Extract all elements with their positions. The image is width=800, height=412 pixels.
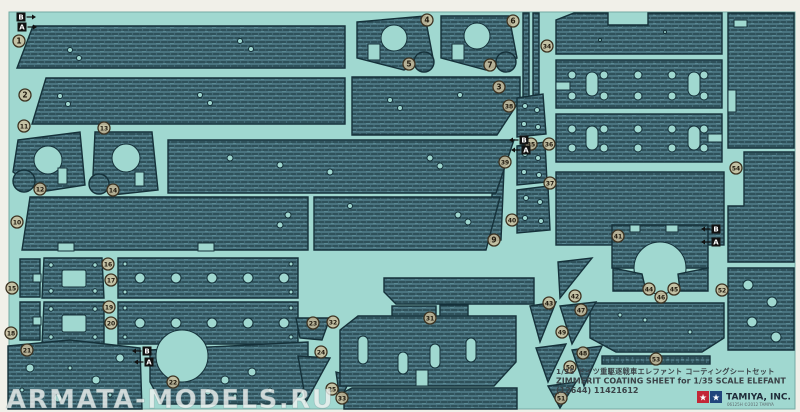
part-number-text: 3 — [496, 82, 501, 91]
sheet-piece — [344, 388, 517, 409]
sheet-piece — [89, 174, 109, 194]
sheet-piece — [22, 197, 308, 250]
piece-hole — [207, 318, 217, 328]
piece-hole — [586, 126, 598, 150]
piece-hole — [568, 92, 576, 100]
piece-hole — [62, 270, 86, 287]
piece-hole — [688, 72, 700, 96]
piece-hole — [93, 263, 97, 267]
footer-line-japanese: 1/35 ドイツ重駆逐戦車エレファント コーティングシートセット — [556, 367, 775, 376]
sheet-piece — [590, 303, 724, 352]
part-number-text: 43 — [545, 300, 553, 307]
part-number-text: 18 — [7, 330, 15, 337]
sheet-piece — [384, 278, 534, 304]
piece-hole — [171, 318, 181, 328]
piece-hole — [171, 273, 181, 283]
piece-hole — [243, 273, 253, 283]
part-number-text: 11 — [20, 123, 28, 130]
part-number-badge: 37 — [544, 177, 556, 189]
sheet-piece — [496, 52, 516, 72]
part-number-badge: 1 — [13, 35, 25, 47]
part-number-badge: 38 — [503, 100, 515, 112]
piece-hole — [568, 144, 576, 152]
part-number-text: 13 — [100, 125, 108, 132]
part-number-badge: 48 — [577, 347, 589, 359]
piece-hole — [437, 163, 443, 169]
part-number-badge: 24 — [315, 346, 327, 358]
part-number-text: 17 — [107, 277, 115, 284]
part-number-badge: 21 — [21, 344, 33, 356]
piece-hole — [600, 125, 608, 133]
part-number-text: 20 — [107, 320, 115, 327]
piece-hole — [523, 216, 528, 221]
part-number-badge: 11 — [18, 120, 30, 132]
piece-hole — [728, 90, 736, 112]
piece-hole — [368, 44, 380, 60]
piece-hole — [568, 125, 576, 133]
piece-hole — [49, 263, 53, 267]
sheet-piece — [314, 197, 500, 250]
piece-hole — [285, 212, 291, 218]
part-number-text: 45 — [670, 286, 678, 293]
part-number-text: 19 — [105, 304, 113, 311]
piece-hole — [66, 102, 71, 107]
piece-hole — [668, 71, 676, 79]
part-number-text: 41 — [614, 233, 622, 240]
piece-hole — [388, 98, 393, 103]
piece-hole — [600, 92, 608, 100]
piece-hole — [93, 335, 97, 339]
piece-hole — [600, 144, 608, 152]
part-number-text: 1 — [16, 36, 21, 45]
piece-hole — [700, 71, 708, 79]
piece-hole — [688, 126, 700, 150]
part-number-text: 21 — [23, 347, 31, 354]
piece-hole — [464, 23, 490, 49]
sheet-piece — [168, 140, 514, 193]
piece-hole — [666, 225, 678, 232]
part-number-badge: 41 — [612, 230, 624, 242]
part-number-text: 48 — [579, 350, 587, 357]
piece-hole — [93, 307, 97, 311]
piece-hole — [49, 307, 53, 311]
edge-marker-letter: B — [144, 348, 149, 356]
piece-hole — [289, 290, 293, 294]
piece-hole — [668, 144, 676, 152]
piece-hole — [277, 222, 283, 228]
part-number-badge: 23 — [307, 317, 319, 329]
edge-marker-letter: B — [713, 226, 718, 234]
part-number-badge: 31 — [424, 312, 436, 324]
part-number-badge: 19 — [103, 301, 115, 313]
piece-hole — [634, 71, 642, 79]
part-number-badge: 6 — [507, 15, 519, 27]
piece-hole — [58, 94, 63, 99]
piece-hole — [26, 364, 34, 372]
part-number-badge: 34 — [541, 40, 553, 52]
piece-hole — [458, 93, 463, 98]
part-number-text: 46 — [657, 294, 665, 301]
piece-hole — [277, 162, 283, 168]
edge-marker-letter: A — [19, 24, 25, 32]
zimmerit-sheet-scan: ARMATA-MODELS.RU 12345679101112131415161… — [0, 0, 800, 412]
sheet-piece — [17, 26, 345, 68]
piece-hole — [535, 108, 540, 113]
piece-hole — [123, 335, 127, 339]
piece-hole — [62, 315, 86, 332]
part-number-badge: 47 — [575, 304, 587, 316]
part-number-badge: 52 — [716, 284, 728, 296]
piece-hole — [58, 243, 74, 251]
piece-hole — [556, 82, 570, 90]
piece-hole — [771, 332, 781, 342]
part-number-text: 36 — [545, 141, 553, 148]
piece-hole — [33, 274, 41, 282]
part-number-badge: 18 — [5, 327, 17, 339]
edge-marker-letter: A — [713, 239, 719, 247]
piece-hole — [123, 262, 127, 266]
part-number-text: 5 — [406, 59, 411, 68]
sheet-piece — [728, 13, 794, 148]
part-number-text: 49 — [558, 329, 566, 336]
piece-hole — [537, 173, 542, 178]
part-number-text: 51 — [557, 395, 565, 402]
piece-hole — [523, 104, 528, 109]
part-number-badge: 33 — [336, 392, 348, 404]
part-number-text: 44 — [645, 286, 653, 293]
part-number-text: 32 — [329, 319, 337, 326]
piece-hole — [238, 39, 243, 44]
part-number-text: 33 — [338, 395, 346, 402]
piece-hole — [123, 290, 127, 294]
piece-hole — [123, 306, 127, 310]
part-number-badge: 42 — [569, 290, 581, 302]
piece-hole — [156, 330, 208, 382]
piece-hole — [243, 318, 253, 328]
piece-hole — [600, 71, 608, 79]
edge-marker-letter: A — [523, 147, 529, 155]
piece-hole — [536, 156, 541, 161]
part-number-text: 42 — [571, 293, 579, 300]
edge-marker-letter: A — [146, 359, 152, 367]
part-number-text: 9 — [491, 235, 496, 244]
piece-hole — [747, 317, 757, 327]
part-number-badge: 40 — [506, 214, 518, 226]
part-number-badge: 54 — [730, 162, 742, 174]
part-number-text: 7 — [487, 60, 492, 69]
part-number-text: 37 — [546, 180, 554, 187]
piece-hole — [643, 318, 647, 322]
bottom-watermark: ARMATA-MODELS.RU — [6, 385, 334, 412]
edge-marker-letter: B — [18, 14, 23, 22]
piece-hole — [93, 289, 97, 293]
part-number-text: 53 — [652, 356, 660, 363]
edge-marker-letter: B — [521, 137, 526, 145]
part-number-badge: 49 — [556, 326, 568, 338]
logo-star-left-icon: ★ — [699, 394, 707, 404]
piece-hole — [68, 48, 73, 53]
sheet-piece — [728, 268, 794, 350]
sheet-piece — [533, 13, 539, 99]
sheet-piece — [32, 78, 345, 124]
part-number-badge: 39 — [499, 156, 511, 168]
piece-hole — [116, 354, 124, 362]
part-number-text: 52 — [718, 287, 726, 294]
piece-hole — [538, 200, 543, 205]
part-number-badge: 5 — [403, 58, 415, 70]
piece-hole — [539, 219, 544, 224]
piece-hole — [668, 92, 676, 100]
part-number-badge: 15 — [6, 282, 18, 294]
piece-hole — [198, 93, 203, 98]
part-number-badge: 7 — [484, 59, 496, 71]
sheet-piece — [517, 94, 546, 137]
part-number-badge: 46 — [655, 291, 667, 303]
part-number-text: 34 — [543, 43, 551, 50]
piece-hole — [734, 20, 747, 27]
part-number-badge: 17 — [105, 274, 117, 286]
piece-hole — [599, 39, 602, 42]
piece-hole — [743, 280, 753, 290]
part-number-badge: 53 — [650, 353, 662, 365]
piece-hole — [398, 106, 403, 111]
part-number-badge: 3 — [493, 81, 505, 93]
piece-hole — [135, 273, 145, 283]
piece-hole — [688, 330, 692, 334]
piece-hole — [49, 289, 53, 293]
part-number-badge: 16 — [102, 258, 114, 270]
part-number-badge: 4 — [421, 14, 433, 26]
piece-hole — [634, 92, 642, 100]
sheet-piece — [517, 186, 550, 233]
part-number-badge: 36 — [543, 138, 555, 150]
part-number-text: 54 — [732, 165, 740, 172]
sheet-piece — [414, 52, 434, 72]
part-number-badge: 2 — [19, 89, 31, 101]
piece-hole — [112, 144, 140, 172]
piece-hole — [208, 101, 213, 106]
part-number-text: 40 — [508, 217, 516, 224]
part-number-badge: 13 — [98, 122, 110, 134]
piece-hole — [427, 155, 433, 161]
part-number-badge: 45 — [668, 283, 680, 295]
piece-hole — [198, 243, 214, 251]
part-number-badge: 20 — [105, 317, 117, 329]
logo-subtext: 06125H ©2012 TAMIYA — [727, 402, 774, 407]
piece-hole — [586, 72, 598, 96]
piece-hole — [522, 122, 527, 127]
piece-hole — [452, 44, 464, 60]
piece-hole — [249, 47, 254, 52]
part-number-text: 23 — [309, 320, 317, 327]
piece-hole — [700, 125, 708, 133]
part-number-text: 12 — [36, 186, 44, 193]
piece-hole — [358, 336, 368, 364]
part-number-badge: 44 — [643, 283, 655, 295]
piece-hole — [207, 273, 217, 283]
piece-hole — [49, 335, 53, 339]
piece-hole — [68, 366, 72, 370]
part-number-text: 31 — [426, 315, 434, 322]
part-number-text: 15 — [8, 285, 16, 292]
piece-hole — [466, 338, 476, 362]
part-number-badge: 9 — [488, 234, 500, 246]
part-number-text: 16 — [104, 261, 112, 268]
part-number-text: 39 — [501, 159, 509, 166]
piece-hole — [289, 262, 293, 266]
piece-hole — [348, 204, 353, 209]
part-number-text: 47 — [577, 307, 585, 314]
piece-hole — [289, 335, 293, 339]
part-number-badge: 43 — [543, 297, 555, 309]
footer-line-code: (12644) 11421612 — [556, 386, 638, 395]
piece-hole — [77, 56, 82, 61]
piece-hole — [58, 168, 67, 184]
piece-hole — [381, 25, 407, 51]
piece-hole — [33, 317, 41, 325]
footer-line-english: ZIMMERIT COATING SHEET for 1/35 SCALE EL… — [556, 377, 786, 386]
piece-hole — [227, 155, 233, 161]
part-number-badge: 32 — [327, 316, 339, 328]
piece-hole — [135, 318, 145, 328]
piece-hole — [398, 352, 408, 374]
part-number-text: 4 — [424, 15, 429, 24]
piece-hole — [279, 318, 289, 328]
part-number-text: 38 — [505, 103, 513, 110]
piece-hole — [289, 306, 293, 310]
part-number-badge: 14 — [107, 184, 119, 196]
piece-hole — [524, 196, 529, 201]
piece-hole — [664, 31, 667, 34]
piece-hole — [465, 219, 471, 225]
piece-hole — [430, 344, 440, 368]
piece-hole — [455, 212, 461, 218]
logo-company-name: TAMIYA, INC. — [726, 393, 791, 403]
piece-hole — [634, 125, 642, 133]
piece-hole — [92, 376, 100, 384]
piece-hole — [522, 170, 527, 175]
piece-hole — [248, 368, 256, 376]
part-number-text: 6 — [510, 16, 515, 25]
part-number-text: 10 — [13, 219, 21, 226]
piece-hole — [630, 225, 640, 232]
piece-hole — [416, 370, 428, 386]
piece-hole — [221, 376, 229, 384]
part-number-text: 2 — [22, 90, 27, 99]
part-number-text: 14 — [109, 187, 117, 194]
sheet-piece — [13, 170, 35, 192]
part-number-badge: 10 — [11, 216, 23, 228]
piece-hole — [135, 172, 144, 186]
piece-hole — [700, 92, 708, 100]
part-number-text: 24 — [317, 349, 325, 356]
piece-hole — [634, 144, 642, 152]
part-number-badge: 12 — [34, 183, 46, 195]
sheet-canvas: ARMATA-MODELS.RU 12345679101112131415161… — [0, 0, 800, 412]
logo-star-right-icon: ★ — [712, 394, 720, 404]
piece-hole — [279, 273, 289, 283]
sheet-piece — [523, 13, 529, 99]
piece-hole — [668, 125, 676, 133]
piece-hole — [767, 297, 777, 307]
piece-hole — [327, 169, 333, 175]
piece-hole — [536, 125, 541, 130]
piece-hole — [708, 134, 722, 142]
piece-hole — [568, 71, 576, 79]
piece-hole — [700, 144, 708, 152]
piece-hole — [618, 313, 622, 317]
